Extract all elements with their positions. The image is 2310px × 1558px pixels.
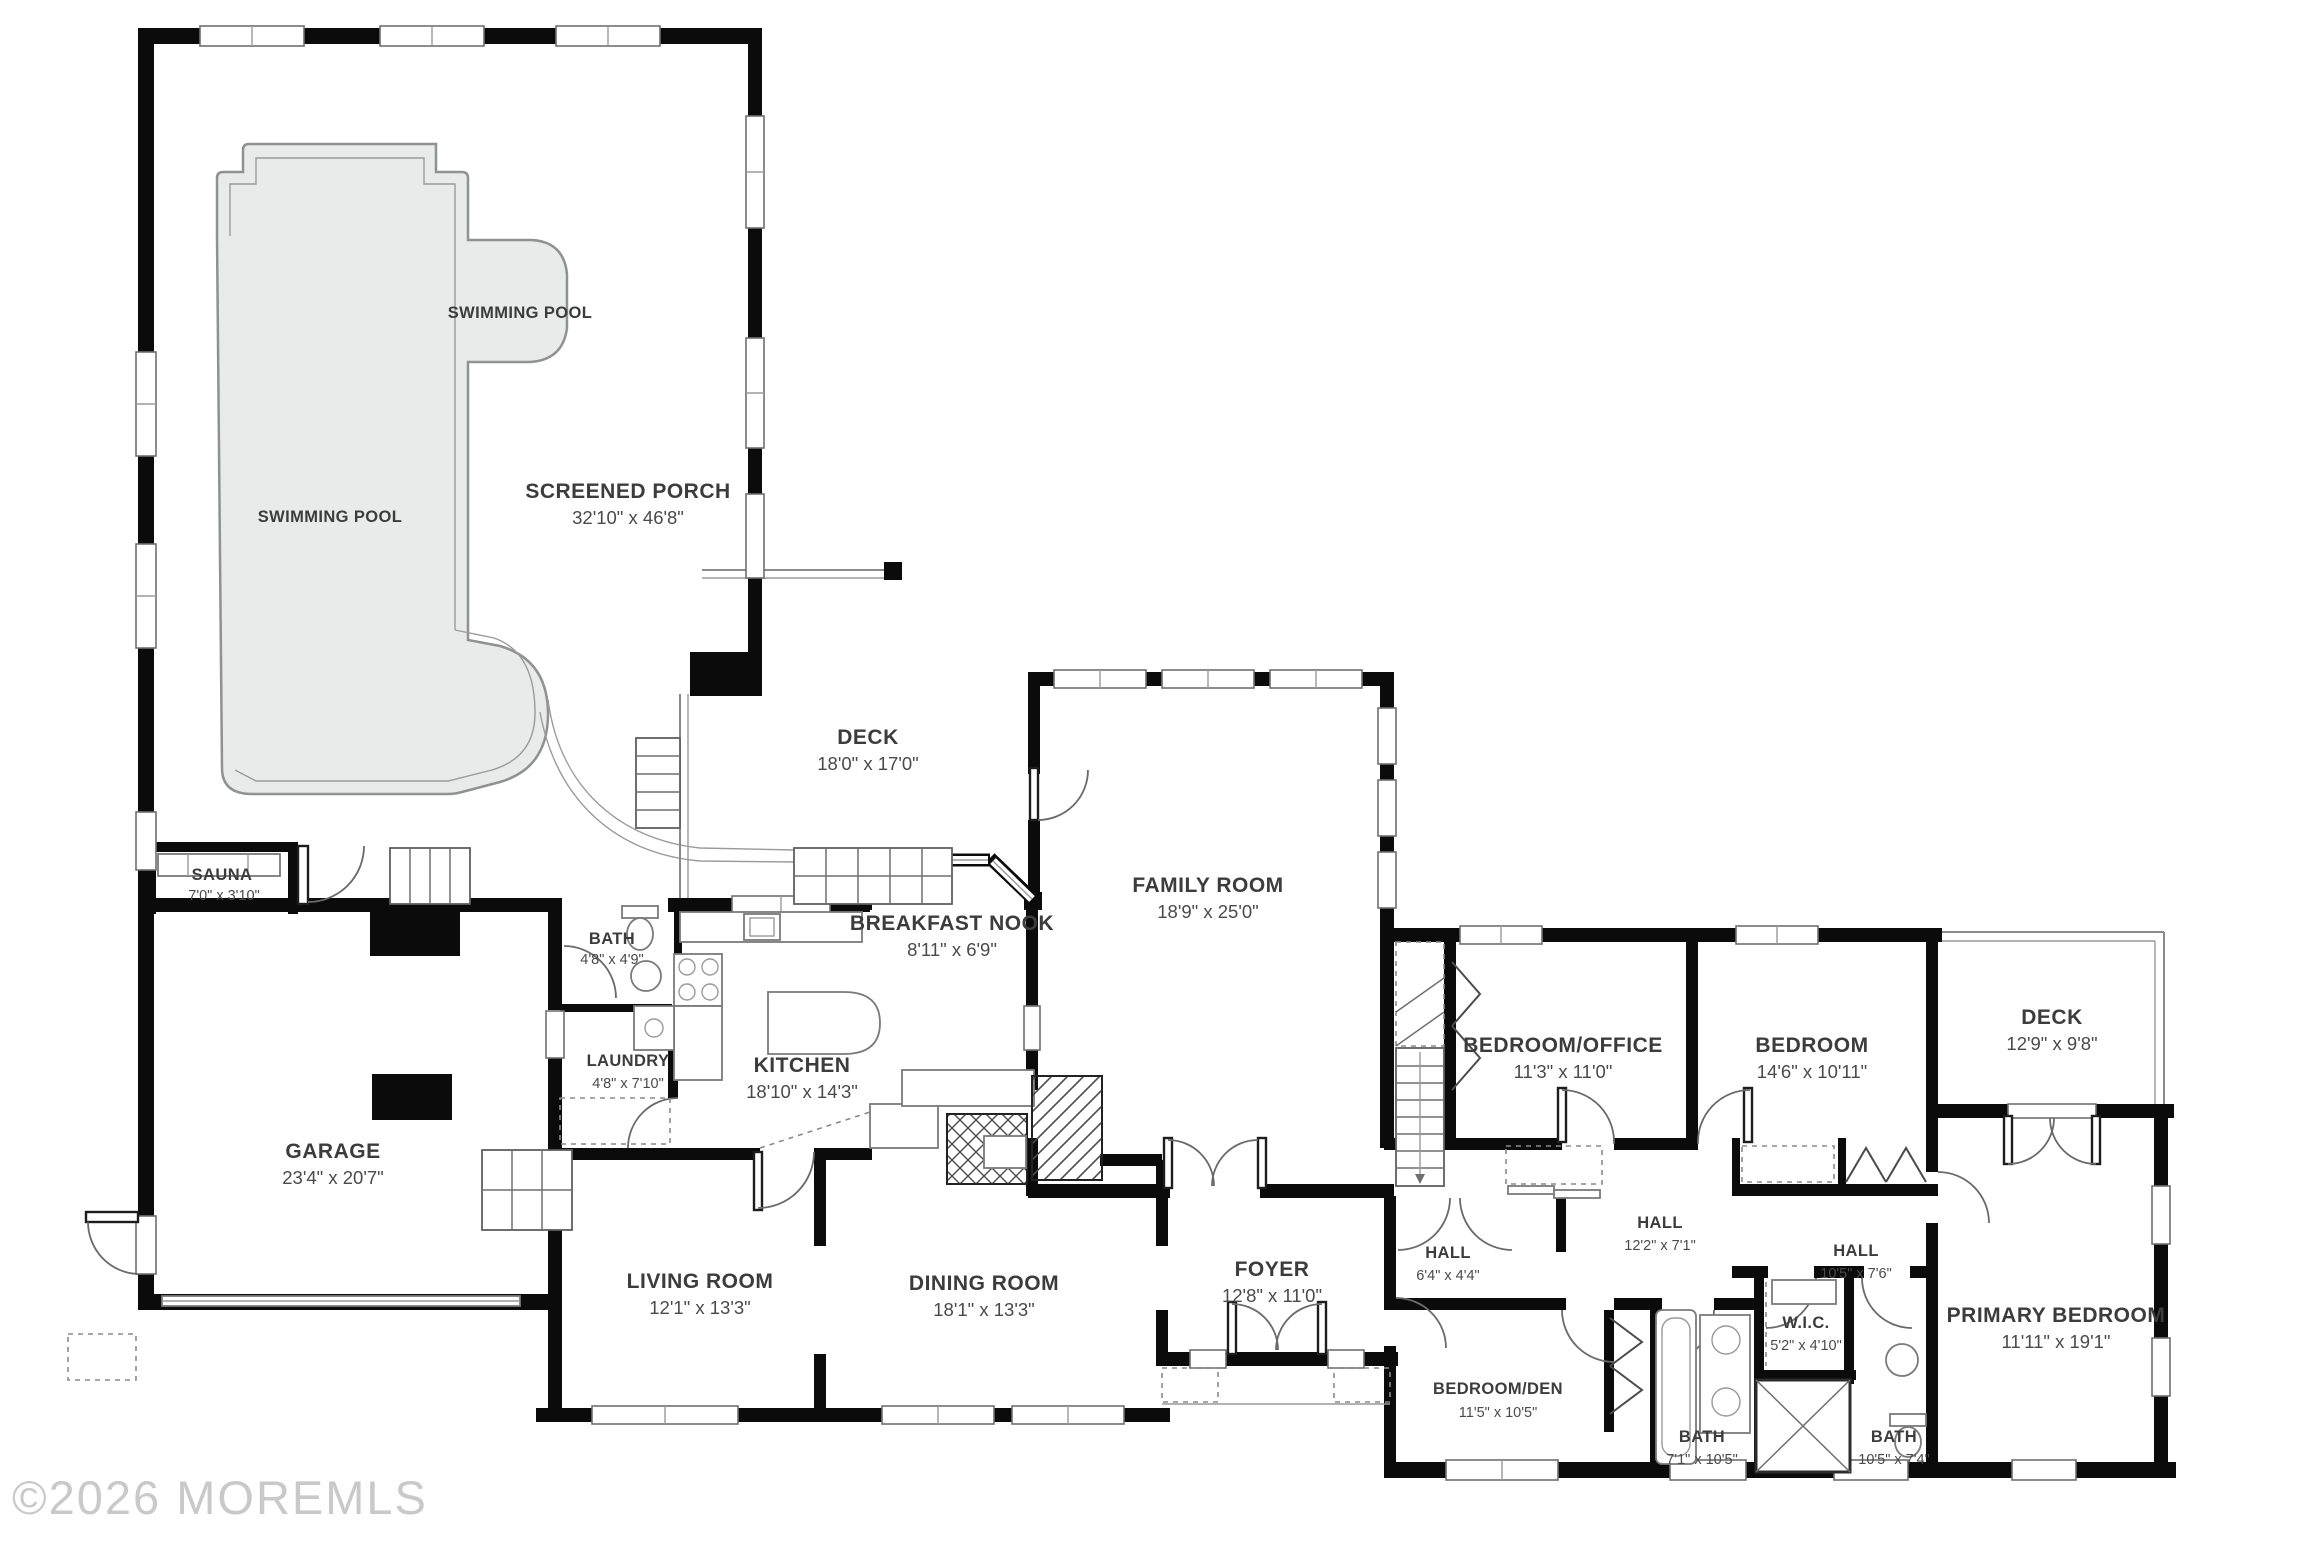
room-label-sauna: SAUNA <box>192 866 253 884</box>
room-dims-bath-primary: 10'5" x 7'4" <box>1858 1452 1929 1468</box>
fixtures <box>68 854 1926 1472</box>
room-dims-sauna: 7'0" x 3'10" <box>188 888 259 904</box>
room-label-living-room: LIVING ROOM <box>627 1270 774 1293</box>
deck-railing <box>680 562 2164 1104</box>
room-dims-hall-right: 10'5" x 7'6" <box>1820 1266 1891 1282</box>
room-dims-deck-main: 18'0" x 17'0" <box>817 753 918 774</box>
room-dims-garage: 23'4" x 20'7" <box>282 1167 383 1188</box>
room-dims-bedroom: 14'6" x 10'11" <box>1757 1061 1867 1082</box>
room-dims-hall-small: 6'4" x 4'4" <box>1416 1268 1479 1284</box>
room-label-bedroom-office: BEDROOM/OFFICE <box>1463 1034 1663 1057</box>
room-dims-bath-main: 4'8" x 4'9" <box>580 952 643 968</box>
floor-plan: SWIMMING POOL SWIMMING POOL SCREENED POR… <box>0 0 2310 1558</box>
room-label-foyer: FOYER <box>1235 1258 1310 1281</box>
room-label-deck-right: DECK <box>2021 1006 2083 1029</box>
room-label-laundry: LAUNDRY <box>587 1052 670 1070</box>
room-label-garage: GARAGE <box>285 1140 380 1163</box>
room-label-screened-porch: SCREENED PORCH <box>525 480 730 503</box>
room-dims-bedroom-office: 11'3" x 11'0" <box>1514 1061 1613 1082</box>
floor-plan-page: SWIMMING POOL SWIMMING POOL SCREENED POR… <box>0 0 2310 1558</box>
room-dims-screened-porch: 32'10" x 46'8" <box>572 507 684 528</box>
room-dims-family-room: 18'9" x 25'0" <box>1157 901 1258 922</box>
room-label-hall-small: HALL <box>1425 1244 1471 1262</box>
room-label-deck-main: DECK <box>837 726 899 749</box>
room-dims-bath-hall: 7'1" x 10'5" <box>1666 1452 1737 1468</box>
room-dims-breakfast-nook: 8'11" x 6'9" <box>907 939 997 960</box>
watermark-text: ©2026 MOREMLS <box>12 1471 428 1524</box>
room-label-bath-primary: BATH <box>1871 1428 1917 1446</box>
room-label-kitchen: KITCHEN <box>754 1054 851 1077</box>
room-label-dining-room: DINING ROOM <box>909 1272 1059 1295</box>
room-label-family-room: FAMILY ROOM <box>1132 874 1283 897</box>
room-dims-bedroom-den: 11'5" x 10'5" <box>1459 1405 1537 1421</box>
room-label-bath-main: BATH <box>589 930 635 948</box>
room-dims-kitchen: 18'10" x 14'3" <box>746 1081 858 1102</box>
room-dims-deck-right: 12'9" x 9'8" <box>2006 1033 2097 1054</box>
room-label-swimming-pool-upper: SWIMMING POOL <box>448 304 593 322</box>
room-label-breakfast-nook: BREAKFAST NOOK <box>850 912 1054 935</box>
room-dims-laundry: 4'8" x 7'10" <box>592 1076 663 1092</box>
room-dims-wic: 5'2" x 4'10" <box>1770 1338 1841 1354</box>
room-label-primary-bedroom: PRIMARY BEDROOM <box>1947 1304 2166 1327</box>
room-label-bath-hall: BATH <box>1679 1428 1725 1446</box>
room-dims-primary-bedroom: 11'11" x 19'1" <box>2001 1331 2110 1352</box>
room-dims-foyer: 12'8" x 11'0" <box>1222 1285 1322 1306</box>
room-label-wic: W.I.C. <box>1782 1314 1829 1332</box>
room-labels: SWIMMING POOL SWIMMING POOL SCREENED POR… <box>188 304 2165 1468</box>
swimming-pool-shape <box>217 144 567 794</box>
room-dims-hall-center: 12'2" x 7'1" <box>1624 1238 1695 1254</box>
room-dims-dining-room: 18'1" x 13'3" <box>933 1299 1034 1320</box>
room-label-bedroom-den: BEDROOM/DEN <box>1433 1380 1563 1398</box>
room-label-hall-right: HALL <box>1833 1242 1879 1260</box>
room-dims-living-room: 12'1" x 13'3" <box>649 1297 750 1318</box>
room-label-swimming-pool: SWIMMING POOL <box>258 508 403 526</box>
room-label-bedroom: BEDROOM <box>1755 1034 1868 1057</box>
room-label-hall-center: HALL <box>1637 1214 1683 1232</box>
